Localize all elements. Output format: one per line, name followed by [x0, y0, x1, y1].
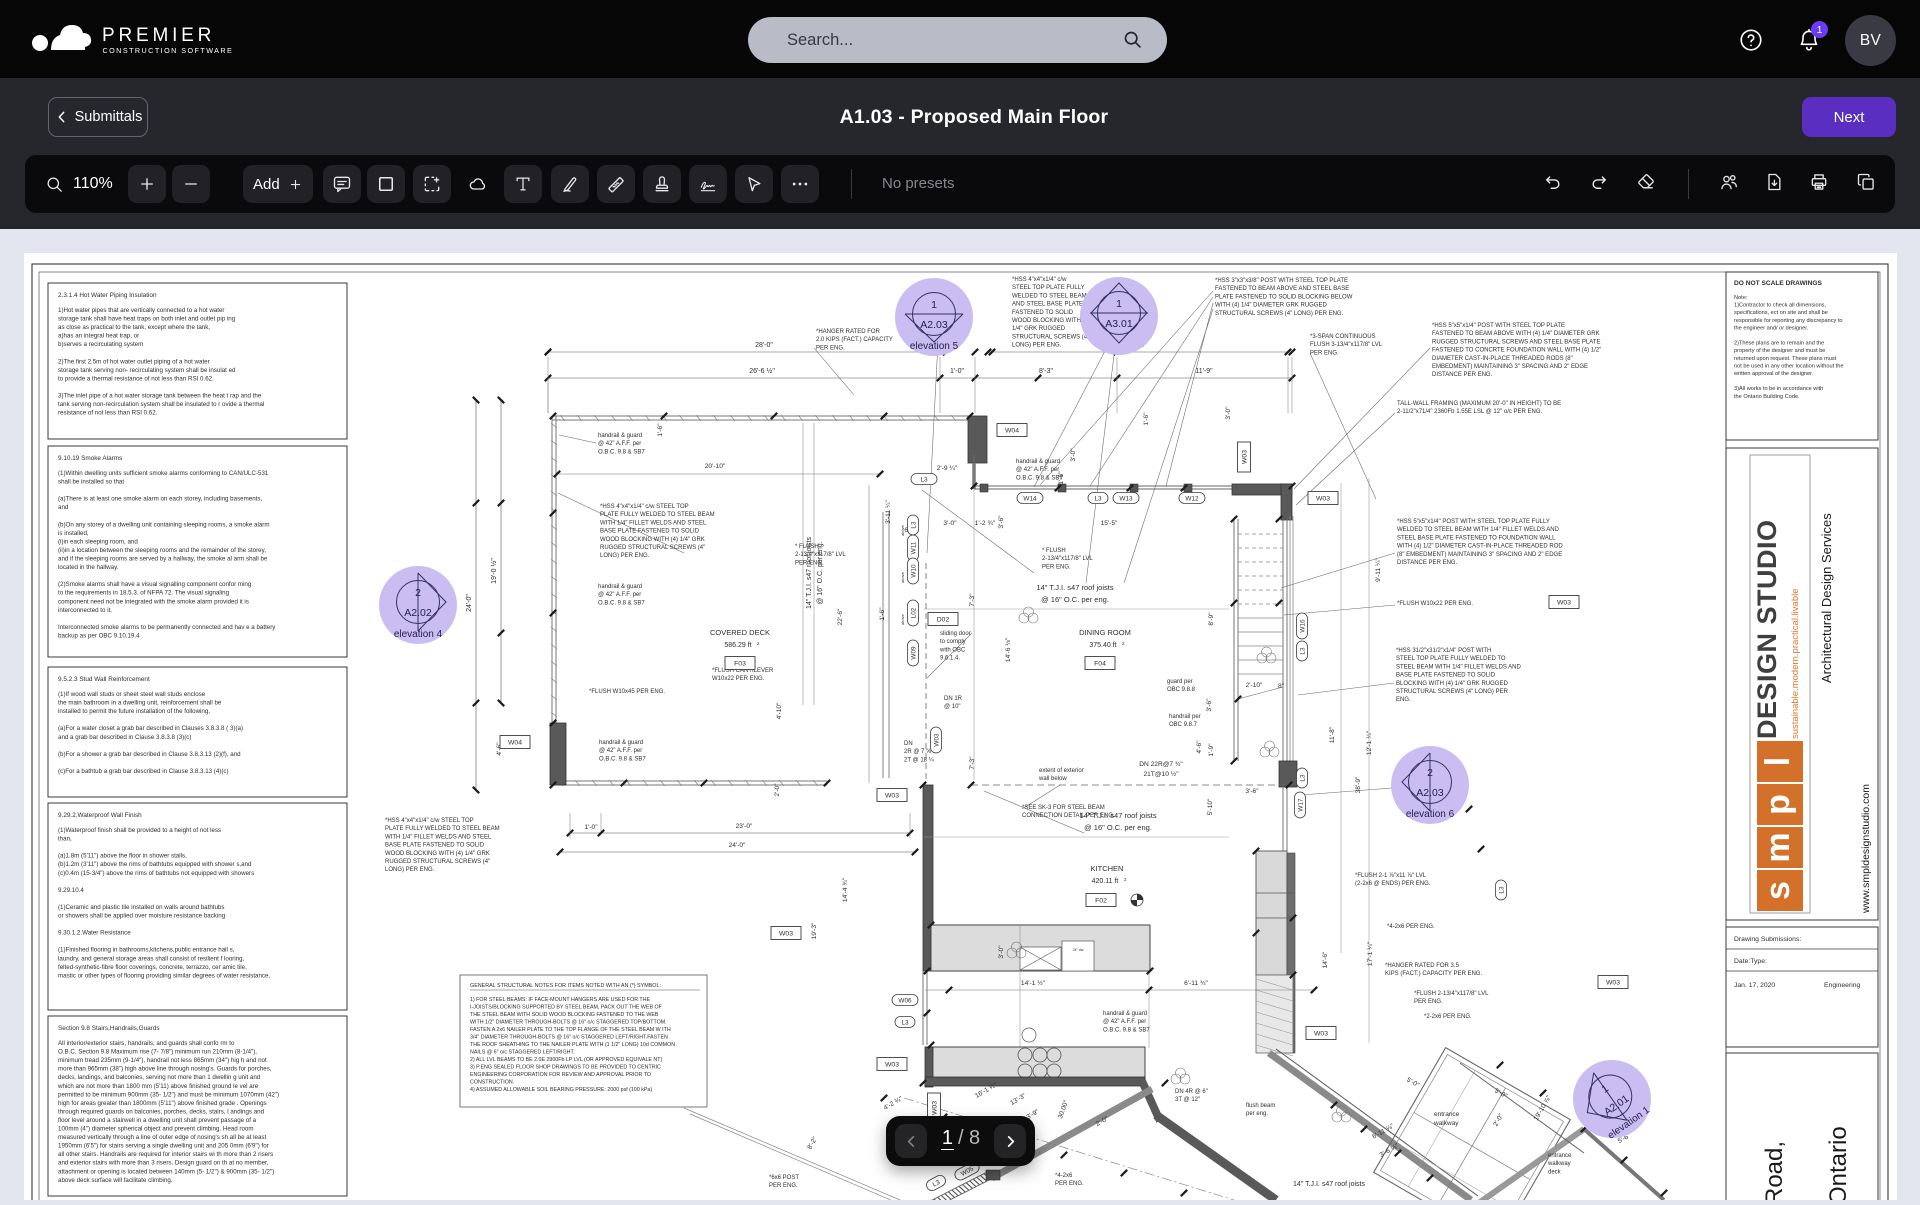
svg-text:1'-6": 1'-6" [1143, 412, 1150, 426]
svg-text:handrail & guard: handrail & guard [599, 740, 643, 746]
svg-text:375.40 ft: 375.40 ft [1089, 642, 1116, 649]
svg-text:COVERED DECK: COVERED DECK [710, 628, 770, 637]
svg-text:1)Contractor to check all dime: 1)Contractor to check all dimensions, [1734, 303, 1826, 309]
svg-text:elevation 4: elevation 4 [394, 629, 443, 640]
svg-text:3'-0": 3'-0" [998, 945, 1005, 959]
svg-text:than,: than, [58, 836, 72, 843]
svg-text:A2.02: A2.02 [404, 607, 432, 619]
svg-text:shall be installed so that: shall be installed so that [58, 479, 124, 486]
svg-text:b)serves a recirculating syste: b)serves a recirculating system [58, 341, 143, 348]
svg-text:all other stairs. Handrails ar: all other stairs. Handrails are required… [58, 1151, 273, 1158]
svg-text:handrail per: handrail per [1169, 714, 1201, 720]
svg-text:3/4" DIAMETER THROUGH-BOLTS @: 3/4" DIAMETER THROUGH-BOLTS @ 16" o/c ST… [470, 1035, 668, 1041]
svg-text:guard per: guard per [1167, 679, 1193, 685]
svg-text:3'-6": 3'-6" [1245, 788, 1259, 795]
svg-text:14" T.J.I. s47 roof joists: 14" T.J.I. s47 roof joists [806, 537, 813, 609]
svg-text:tank serving non-recirculation: tank serving non-recirculation system sh… [58, 401, 264, 408]
svg-text:STRUCTURAL SCREWS (4": STRUCTURAL SCREWS (4" [1012, 334, 1089, 340]
svg-text:storage tank shall have heat t: storage tank shall have heat traps on bo… [58, 316, 236, 323]
svg-text:21T@10 ½": 21T@10 ½" [1143, 770, 1179, 778]
svg-text:14'-4 ¾": 14'-4 ¾" [842, 877, 849, 902]
svg-text:RUGGED STRUCTURAL SCREWS (4": RUGGED STRUCTURAL SCREWS (4" [385, 859, 490, 865]
svg-text:3)The inlet pipe of a hot wate: 3)The inlet pipe of a hot water storage … [58, 393, 262, 400]
svg-text:DO NOT SCALE DRAWINGS: DO NOT SCALE DRAWINGS [1734, 280, 1823, 287]
svg-text:38'-9": 38'-9" [1355, 776, 1362, 793]
svg-text:CONSTRUCTION SOFTWARE: CONSTRUCTION SOFTWARE [103, 46, 234, 55]
svg-text:F02: F02 [1095, 897, 1107, 904]
svg-text:100mm (4") diameter spherical: 100mm (4") diameter spherical object and… [58, 1126, 253, 1133]
svg-text:586.29 ft: 586.29 ft [724, 642, 751, 649]
svg-text:sliding door: sliding door [940, 631, 971, 637]
svg-text:26'-6 ½": 26'-6 ½" [749, 367, 775, 375]
svg-text:9.29.2.Waterproof Wall Finish: 9.29.2.Waterproof Wall Finish [58, 812, 142, 819]
svg-text:W12: W12 [1185, 495, 1199, 502]
svg-text:@ 42" A.F.F. per: @ 42" A.F.F. per [599, 748, 642, 754]
svg-text:*HANGER RATED FOR 3.5: *HANGER RATED FOR 3.5 [1385, 963, 1460, 969]
svg-text:9.5.2.3 Stud Wall Reinforcemen: 9.5.2.3 Stud Wall Reinforcement [58, 676, 150, 683]
svg-text:BLOCKING WITH (4) 1/4" GRK RUG: BLOCKING WITH (4) 1/4" GRK RUGGED [1396, 681, 1508, 687]
svg-text:5'-0": 5'-0" [1493, 1087, 1508, 1100]
svg-text:19'-0 ½": 19'-0 ½" [490, 558, 498, 584]
svg-text:EMBEDMENT) MAINTAINING 3" SPAC: EMBEDMENT) MAINTAINING 3" SPACING AND 2"… [1432, 364, 1588, 370]
svg-text:elevation 5: elevation 5 [910, 341, 959, 352]
svg-text:(a)There is at least one smoke: (a)There is at least one smoke alarm on … [58, 496, 262, 503]
svg-text:property of the designer and m: property of the designer and must be [1734, 348, 1825, 354]
svg-text:8": 8" [1278, 683, 1285, 690]
svg-text:to provide a thermal resistanc: to provide a thermal resistance of not l… [58, 375, 214, 382]
svg-text:9'-11 ¼": 9'-11 ¼" [1375, 558, 1382, 582]
svg-text:WOOD BLOCKING WITH (4) 1/4" GR: WOOD BLOCKING WITH (4) 1/4" GRK [600, 537, 705, 543]
svg-text:@ 42" A.F.F. per: @ 42" A.F.F. per [1016, 467, 1059, 473]
svg-text:handrail & guard: handrail & guard [1103, 1011, 1147, 1017]
svg-text:O.B.C. 9.8 & SB7: O.B.C. 9.8 & SB7 [1016, 475, 1063, 481]
svg-text:12'-1 ¼": 12'-1 ¼" [1366, 730, 1373, 755]
svg-text:elevation 6: elevation 6 [1406, 809, 1455, 820]
svg-text:PLATE FULLY WELDED TO STEEL BE: PLATE FULLY WELDED TO STEEL BEAM [600, 512, 715, 518]
svg-text:Section 9.8 Stairs,Handrails,G: Section 9.8 Stairs,Handrails,Guards [58, 1025, 160, 1032]
svg-text:6'-11 ¾": 6'-11 ¾" [1184, 980, 1208, 987]
svg-text:backup as per OBC 9.10.19.4: backup as per OBC 9.10.19.4 [58, 632, 140, 639]
svg-text:as close as practical to the t: as close as practical to the tank, excep… [58, 324, 210, 331]
svg-text:FASTENED TO CONCRTE FOUNDATION: FASTENED TO CONCRTE FOUNDATION WALL WITH… [1432, 348, 1601, 354]
svg-text:F04: F04 [1094, 660, 1106, 667]
svg-text:*HANGER RATED FOR: *HANGER RATED FOR [816, 329, 881, 335]
svg-text:BASE PLATE FASTENED TO SOLID: BASE PLATE FASTENED TO SOLID [385, 843, 485, 849]
svg-text:2'-9 ¼": 2'-9 ¼" [937, 465, 958, 472]
svg-text:the engineer and/ or designer.: the engineer and/ or designer. [1734, 325, 1809, 331]
svg-text:to the requirements in 18.5.3.: to the requirements in 18.5.3. of NFPA 7… [58, 590, 230, 597]
svg-text:FASTENED TO BEAM ABOVE AND STE: FASTENED TO BEAM ABOVE AND STEEL BASE [1215, 286, 1349, 292]
svg-text:8'-9": 8'-9" [1208, 612, 1215, 626]
svg-text:laundry, and general storage a: laundry, and general storage areas shall… [58, 955, 245, 962]
svg-text:*FLUSH W10x22 PER ENG.: *FLUSH W10x22 PER ENG. [1397, 601, 1473, 607]
svg-text:W04: W04 [508, 739, 522, 746]
svg-text:WELDED TO STEEL BEAM: WELDED TO STEEL BEAM [1012, 293, 1087, 299]
svg-text:STEEL TOP PLATE FULLY WELDED T: STEEL TOP PLATE FULLY WELDED TO [1396, 656, 1506, 662]
svg-text:W11: W11 [910, 541, 917, 554]
svg-text:(c)For a bathtub a grab bar de: (c)For a bathtub a grab bar described in… [58, 768, 229, 775]
svg-text:per eng.: per eng. [1246, 1111, 1268, 1117]
svg-text:WITH 1/4" FILLET WELDS AND STE: WITH 1/4" FILLET WELDS AND STEEL [600, 520, 707, 526]
svg-text:1'-9": 1'-9" [1208, 743, 1215, 757]
svg-text:p: p [1759, 794, 1797, 815]
svg-text:ENGINEERING CORPORATION FOR RE: ENGINEERING CORPORATION FOR REVIEW AND A… [470, 1072, 651, 1078]
svg-text:DN 22R@7 ¾": DN 22R@7 ¾" [1139, 761, 1183, 768]
svg-text:3'-11 ¼": 3'-11 ¼" [885, 500, 892, 524]
svg-text:handrail & guard: handrail & guard [598, 584, 642, 590]
svg-text:L3: L3 [910, 521, 917, 529]
svg-text:I-JOISTS/BLOCKING SUPPORTED BY: I-JOISTS/BLOCKING SUPPORTED BY STEEL BEA… [470, 1005, 663, 1011]
svg-text:2: 2 [1122, 641, 1125, 646]
svg-text:9.30.1.2.Water Resistance: 9.30.1.2.Water Resistance [58, 930, 131, 937]
svg-text:9.29.10.4: 9.29.10.4 [58, 887, 84, 894]
svg-text:1'-6": 1'-6" [879, 607, 886, 621]
svg-text:22'-6": 22'-6" [837, 608, 844, 625]
svg-text:WITH 1/2" DIAMETER THROUGH-BO: WITH 1/2" DIAMETER THROUGH-BOLTS @ 16" o… [470, 1020, 667, 1026]
svg-text:storage tank serving non- reci: storage tank serving non- recirculating … [58, 367, 236, 374]
svg-text:*HSS 4"x4"x1/4" c/w: *HSS 4"x4"x1/4" c/w [1012, 277, 1067, 283]
svg-text:W10x22 PER ENG.: W10x22 PER ENG. [712, 676, 765, 682]
svg-text:W14: W14 [1023, 495, 1037, 502]
svg-text:attachment or opening is locat: attachment or opening is located between… [58, 1168, 274, 1175]
svg-text:above: above [900, 524, 905, 536]
svg-text:WITH (4) 1/4" DIAMETER GRK RUG: WITH (4) 1/4" DIAMETER GRK RUGGED [1215, 303, 1327, 309]
svg-text:3'-6": 3'-6" [1206, 698, 1213, 712]
svg-text:24" dw: 24" dw [1073, 948, 1084, 952]
svg-text:* FLUSH: * FLUSH [1042, 548, 1066, 554]
svg-text:installed to permit the future: installed to permit the future installat… [58, 708, 210, 715]
svg-text:entrance: entrance [1548, 1153, 1572, 1159]
svg-text:Road,: Road, [1761, 1141, 1788, 1200]
svg-text:DISTANCE PER ENG.: DISTANCE PER ENG. [1397, 560, 1458, 566]
svg-text:W03: W03 [931, 1101, 938, 1115]
svg-text:A3.01: A3.01 [1105, 318, 1133, 330]
svg-text:2)The first 2.5m of hot water: 2)The first 2.5m of hot water outlet pip… [58, 358, 210, 365]
svg-text:component need not be integrat: component need not be integrated with th… [58, 598, 249, 605]
svg-text:is installed,: is installed, [58, 530, 89, 537]
svg-text:THE STEEL BEAM WITH SOLID WOOD: THE STEEL BEAM WITH SOLID WOOD BLOCKING … [470, 1012, 659, 1018]
svg-text:2-11/2"x71/4" 2360Fb 1.55E LSL: 2-11/2"x71/4" 2360Fb 1.55E LSL @ 12" o/c… [1397, 409, 1543, 415]
svg-text:returned upon request. These p: returned upon request. These plans must [1734, 356, 1837, 362]
svg-text:1: 1 [931, 299, 937, 311]
svg-text:TALL-WALL FRAMING (MAXIMUM 20': TALL-WALL FRAMING (MAXIMUM 20'-0" IN HEI… [1397, 401, 1561, 407]
svg-text:floor level around a stairwell: floor level around a stairwell in a dwel… [58, 1117, 257, 1124]
svg-text:mastic or other types of floor: mastic or other types of flooring provid… [58, 972, 270, 979]
svg-text:(i)in each sleeping room, and: (i)in each sleeping room, and [58, 538, 138, 545]
svg-text:and exterior stairs with more: and exterior stairs with more than 3 ris… [58, 1160, 269, 1167]
svg-text:FASTENED TO BEAM ABOVE WITH (4: FASTENED TO BEAM ABOVE WITH (4) 1/4" DIA… [1432, 331, 1600, 337]
svg-text:Engineering: Engineering [1824, 982, 1860, 989]
svg-text:@ 42" A.F.F. per: @ 42" A.F.F. per [598, 592, 641, 598]
svg-text:A2.03: A2.03 [1416, 787, 1444, 799]
svg-text:more than 965mm (38") high abo: more than 965mm (38") high above line th… [58, 1066, 272, 1073]
svg-text:14'-6": 14'-6" [1322, 951, 1329, 968]
svg-text:WOOD BLOCKING WITH (4): WOOD BLOCKING WITH (4) [1012, 318, 1090, 324]
svg-text:W03: W03 [1557, 599, 1571, 606]
svg-text:2: 2 [757, 641, 760, 646]
svg-text:resistance of not less than RS: resistance of not less than RSI 0.62. [58, 410, 158, 417]
svg-text:DIAMETER CAST-IN-PLACE THREADE: DIAMETER CAST-IN-PLACE THREADED RODS (8" [1432, 356, 1573, 362]
svg-text:WOOD BLOCKING WITH (4) 1/4" GR: WOOD BLOCKING WITH (4) 1/4" GRK [385, 851, 490, 857]
svg-text:(a)For a water closet a grab b: (a)For a water closet a grab bar describ… [58, 725, 243, 732]
svg-text:PLATE FULLY WELDED TO STEEL BE: PLATE FULLY WELDED TO STEEL BEAM [385, 826, 500, 832]
svg-text:W03: W03 [1241, 450, 1248, 464]
svg-text:*HSS 5"x5"x1/4" POST WITH STEE: *HSS 5"x5"x1/4" POST WITH STEEL TOP PLAT… [1432, 323, 1565, 329]
svg-text:Date:Type:: Date:Type: [1734, 958, 1767, 965]
svg-text:(a)1.8m (5'11") above the floo: (a)1.8m (5'11") above the floor in showe… [58, 853, 187, 860]
svg-text:O.B.C. 9.8 & SB7: O.B.C. 9.8 & SB7 [598, 600, 645, 606]
svg-text:flush beam: flush beam [1246, 1103, 1275, 1109]
svg-text:STEEL BEAM WITH 1/4" FILLET WE: STEEL BEAM WITH 1/4" FILLET WELDS AND [1396, 664, 1521, 670]
svg-text:5'-10": 5'-10" [1207, 798, 1214, 815]
svg-text:*3-SPAN CONTINUOUS: *3-SPAN CONTINUOUS [1310, 334, 1376, 340]
svg-text:DN: DN [904, 741, 913, 747]
svg-text:*HSS 5"x5"x1/4" POST WITH STEE: *HSS 5"x5"x1/4" POST WITH STEEL TOP PLAT… [1397, 519, 1550, 525]
svg-text:walkway: walkway [1547, 1161, 1571, 1167]
svg-text:(b)On any storey of a dwelling: (b)On any storey of a dwelling unit cont… [58, 521, 270, 528]
svg-text:9.6.1.4.: 9.6.1.4. [940, 656, 960, 662]
svg-text:W03: W03 [933, 733, 940, 747]
svg-text:2) ALL LVL BEAMS TO BE 2.0E 29: 2) ALL LVL BEAMS TO BE 2.0E 2900Fb LP LV… [470, 1057, 662, 1063]
svg-text:WELDED TO STEEL BEAM WITH 1/4": WELDED TO STEEL BEAM WITH 1/4" FILLET WE… [1397, 527, 1560, 533]
svg-text:BASE PLATE FASTENED TO SOLID: BASE PLATE FASTENED TO SOLID [1396, 673, 1496, 679]
svg-text:and a grab bar described in Cl: and a grab bar described in Clause 3.8.3… [58, 734, 191, 741]
svg-text:Drawing Submissions:: Drawing Submissions: [1734, 936, 1801, 943]
svg-text:3T @ 12": 3T @ 12" [1175, 1097, 1200, 1103]
svg-text:*4-2x6 PER ENG.: *4-2x6 PER ENG. [1387, 924, 1435, 930]
svg-text:PER ENG.: PER ENG. [1310, 350, 1339, 356]
svg-text:14" T.J.I. s47 roof joists: 14" T.J.I. s47 roof joists [1036, 583, 1113, 592]
svg-text:2T @ 18 ¼: 2T @ 18 ¼ [904, 757, 935, 763]
svg-text:W13: W13 [1119, 495, 1133, 502]
svg-text:FASTENED TO SOLID: FASTENED TO SOLID [1012, 310, 1074, 316]
svg-text:1'-2 ¾": 1'-2 ¾" [975, 520, 996, 527]
svg-text:specifications, ect on site an: specifications, ect on site and shall be [1734, 310, 1828, 316]
svg-text:2'-10": 2'-10" [1246, 682, 1263, 689]
svg-text:W09: W09 [910, 646, 917, 660]
svg-text:STEEL BASE PLATE FASTENED TO F: STEEL BASE PLATE FASTENED TO FOUNDATION … [1397, 535, 1556, 541]
svg-text:PER ENG.: PER ENG. [1055, 1181, 1084, 1187]
svg-text:and: and [58, 504, 69, 511]
svg-text:(1)Ceramic and plastic tile in: (1)Ceramic and plastic tile installed on… [58, 904, 224, 911]
svg-text:(ii)in a location between the: (ii)in a location between the sleeping r… [58, 547, 266, 554]
svg-text:W03: W03 [1316, 495, 1330, 502]
svg-text:@ 16" O.C. per eng.: @ 16" O.C. per eng. [817, 541, 824, 604]
svg-text:W06: W06 [898, 997, 912, 1004]
svg-text:4'-2 ¾": 4'-2 ¾" [883, 1095, 905, 1112]
svg-text:or showers shall be applied ov: or showers shall be applied over moistur… [58, 913, 226, 920]
svg-text:@ 10": @ 10" [944, 704, 961, 710]
svg-text:OBC 9.8.7: OBC 9.8.7 [1169, 722, 1198, 728]
svg-text:420.11 ft: 420.11 ft [1092, 878, 1119, 885]
svg-text:*FLUSH W10x45 PER ENG.: *FLUSH W10x45 PER ENG. [589, 689, 665, 695]
svg-text:2)These plans are to remain an: 2)These plans are to remain and the [1734, 341, 1824, 347]
svg-text:3'-0": 3'-0" [943, 520, 957, 527]
svg-text:*HSS 3"x3"x3/8" POST WITH STEE: *HSS 3"x3"x3/8" POST WITH STEEL TOP PLAT… [1215, 278, 1348, 284]
svg-text:(2-2x6 @ ENDS) PER ENG.: (2-2x6 @ ENDS) PER ENG. [1355, 881, 1431, 887]
svg-text:@ 42" A.F.F. per: @ 42" A.F.F. per [598, 441, 641, 447]
svg-text:W03: W03 [1314, 1030, 1328, 1037]
svg-text:*2-2x6 PER ENG.: *2-2x6 PER ENG. [1424, 1014, 1472, 1020]
svg-text:above: above [900, 613, 905, 625]
svg-text:high for areas greater than 18: high for areas greater than 1800mm (5'11… [58, 1100, 267, 1107]
svg-text:PER ENG.: PER ENG. [1414, 999, 1443, 1005]
svg-text:DN 4R @ 6": DN 4R @ 6" [1175, 1089, 1208, 1095]
svg-text:STRUCTURAL SCREWS (4" LONG) PE: STRUCTURAL SCREWS (4" LONG) PER [1396, 689, 1509, 695]
svg-text:W03: W03 [885, 1061, 899, 1068]
svg-text:8'-2": 8'-2" [806, 1135, 819, 1150]
svg-text:Note:: Note: [1734, 295, 1748, 301]
svg-text:deck: deck [1548, 1169, 1562, 1175]
svg-text:3) P.ENG SEALED FLOOR SHOP DRA: 3) P.ENG SEALED FLOOR SHOP DRAWINGS TO B… [470, 1065, 661, 1071]
svg-text:wall below: wall below [1038, 776, 1067, 782]
svg-text:responsible for reporting any: responsible for reporting any discrepanc… [1734, 318, 1843, 324]
svg-text:2.3.1.4 Hot Water Piping Insul: 2.3.1.4 Hot Water Piping Insulation [58, 292, 157, 299]
svg-text:1'-6": 1'-6" [657, 423, 664, 437]
svg-text:decks, landings, and balconies: decks, landings, and balconies, serving … [58, 1074, 261, 1081]
svg-text:23'-0": 23'-0" [736, 823, 753, 830]
svg-text:KIPS (FACT.) CAPACITY PER ENG.: KIPS (FACT.) CAPACITY PER ENG. [1385, 971, 1482, 977]
svg-text:s: s [1759, 881, 1797, 900]
svg-text:*FLUSH 2-1 ⅞"x11 ⅞" LVL: *FLUSH 2-1 ⅞"x11 ⅞" LVL [1355, 873, 1427, 879]
svg-text:O.B.C. Section 9.8 Maximum ris: O.B.C. Section 9.8 Maximum rise (7- 7/8"… [58, 1049, 257, 1056]
svg-text:(1)Finished flooring in bathro: (1)Finished flooring in bathrooms,kitche… [58, 947, 235, 954]
svg-text:L3: L3 [920, 476, 928, 483]
svg-text:PLATE FASTENED TO SOLID BLOCKI: PLATE FASTENED TO SOLID BLOCKING BELOW [1215, 294, 1353, 300]
svg-text:(2)Smoke alarms shall have a v: (2)Smoke alarms shall have a visual sign… [58, 581, 252, 588]
svg-text:1/4" GRK RUGGED: 1/4" GRK RUGGED [1012, 326, 1066, 332]
svg-text:8'-3": 8'-3" [1039, 368, 1053, 375]
svg-text:and if the sleeping rooms are: and if the sleeping rooms are served by … [58, 556, 268, 563]
svg-text:FLUSH 3-13/4"x117/8" LVL: FLUSH 3-13/4"x117/8" LVL [1310, 342, 1383, 348]
svg-text:11'-8": 11'-8" [1329, 726, 1336, 743]
svg-text:L3: L3 [1498, 886, 1505, 894]
svg-text:BASE PLATE FASTENED TO SOLID: BASE PLATE FASTENED TO SOLID [600, 529, 700, 535]
svg-text:W03: W03 [779, 930, 793, 937]
svg-text:located in the hallway.: located in the hallway. [58, 564, 119, 571]
svg-text:@ 16" O.C. per eng.: @ 16" O.C. per eng. [1084, 823, 1152, 832]
svg-text:NAILS @ 6" o/c STAGGERED LEFT/: NAILS @ 6" o/c STAGGERED LEFT/RIGHT. [470, 1050, 575, 1056]
svg-text:WITH (4) 1/2" DIAMETER CAST-IN: WITH (4) 1/2" DIAMETER CAST-IN-PLACE THR… [1397, 544, 1563, 550]
svg-text:O.B.C. 9.8 & SB7: O.B.C. 9.8 & SB7 [599, 756, 646, 762]
svg-text:which are not more than 1800 m: which are not more than 1800 mm (5'11) a… [57, 1083, 259, 1090]
svg-text:W10: W10 [910, 564, 917, 578]
svg-text:THE ROOF SHEATHING TO THE NAIL: THE ROOF SHEATHING TO THE NAILER PLATE W… [470, 1042, 675, 1048]
svg-text:*HSS 31/2"x31/2"x1/4" POST WIT: *HSS 31/2"x31/2"x1/4" POST WITH [1396, 648, 1491, 654]
svg-text:interconnected to it.: interconnected to it. [58, 607, 112, 614]
svg-text:KITCHEN: KITCHEN [1091, 864, 1124, 873]
svg-text:handrail & guard: handrail & guard [598, 433, 642, 439]
svg-text:1'-0": 1'-0" [584, 824, 598, 831]
svg-text:17'-1 ¼": 17'-1 ¼" [1367, 941, 1374, 966]
svg-text:2-13/4"x117/8" LVL: 2-13/4"x117/8" LVL [1042, 556, 1093, 562]
svg-text:11'-9": 11'-9" [1195, 368, 1213, 375]
svg-text:3'-0": 3'-0" [1225, 406, 1232, 420]
svg-text:9.10.19 Smoke Alarms: 9.10.19 Smoke Alarms [58, 455, 122, 462]
svg-text:extent of exterior: extent of exterior [1039, 768, 1084, 774]
svg-text:W03: W03 [1606, 979, 1620, 986]
svg-text:RUGGED STRUCTURAL SCREWS (4": RUGGED STRUCTURAL SCREWS (4" [600, 545, 705, 551]
svg-text:2: 2 [1427, 767, 1433, 779]
svg-text:@ 16" O.C. per eng.: @ 16" O.C. per eng. [1041, 595, 1109, 604]
svg-text:handrail & guard: handrail & guard [1016, 459, 1060, 465]
svg-text:L02: L02 [910, 607, 917, 618]
svg-text:*HSS 4"x4"x1/4" c/w STEEL TOP: *HSS 4"x4"x1/4" c/w STEEL TOP [385, 818, 474, 824]
svg-text:Interconnected smoke alarms to: Interconnected smoke alarms to be perman… [58, 624, 276, 631]
svg-text:1'-0": 1'-0" [950, 368, 964, 375]
svg-text:4'-10": 4'-10" [776, 702, 783, 719]
svg-text:permitted to be minimum 900mm: permitted to be minimum 900mm (35- 1/2")… [58, 1091, 279, 1098]
svg-text:a)has an integral heat trap, o: a)has an integral heat trap, or [58, 333, 139, 340]
svg-text:A2.03: A2.03 [920, 319, 948, 331]
svg-text:15'-5": 15'-5" [1101, 520, 1118, 527]
svg-text:O.B.C. 9.8 & SB7: O.B.C. 9.8 & SB7 [598, 449, 645, 455]
svg-text:19'-3": 19'-3" [811, 922, 818, 939]
svg-text:*4-2x6: *4-2x6 [1055, 1173, 1073, 1179]
svg-text:STEEL TOP PLATE FULLY: STEEL TOP PLATE FULLY [1012, 285, 1085, 291]
svg-text:www.smpldesignstudio.com: www.smpldesignstudio.com [1860, 784, 1872, 914]
svg-text:7'-3": 7'-3" [969, 593, 976, 607]
svg-text:*HSS 4"x4"x1/4" c/w STEEL TOP: *HSS 4"x4"x1/4" c/w STEEL TOP [600, 504, 689, 510]
svg-text:24'-0": 24'-0" [729, 842, 746, 849]
svg-text:4) ASSUMED ALLOWABLE SOIL BEAR: 4) ASSUMED ALLOWABLE SOIL BEARING PRESSU… [470, 1087, 652, 1093]
svg-text:(b)For a shower a grab bar des: (b)For a shower a grab bar described in … [58, 751, 241, 758]
svg-text:*6x6 POST: *6x6 POST [769, 1175, 799, 1181]
svg-text:l: l [1759, 757, 1797, 766]
svg-text:L3: L3 [1299, 774, 1306, 782]
svg-text:2: 2 [415, 587, 421, 599]
svg-text:Ontario: Ontario [1825, 1126, 1852, 1200]
svg-text:(1)If wood wall studs or sheet: (1)If wood wall studs or sheet steel wal… [58, 691, 206, 698]
svg-text:PREMIER: PREMIER [102, 25, 215, 46]
svg-text:DINING ROOM: DINING ROOM [1079, 628, 1131, 637]
svg-text:14'-1 ½": 14'-1 ½" [1021, 979, 1046, 987]
svg-text:above: above [900, 571, 905, 583]
svg-text:with OBC: with OBC [939, 647, 966, 653]
svg-text:F03: F03 [734, 660, 746, 667]
svg-text:ENG.: ENG. [1396, 697, 1411, 703]
svg-text:the Ontario Building Code.: the Ontario Building Code. [1734, 394, 1800, 400]
svg-text:2.0 KIPS (FACT.) CAPACITY: 2.0 KIPS (FACT.) CAPACITY [816, 337, 893, 343]
svg-text:2R @ 7 ⅝: 2R @ 7 ⅝ [904, 749, 932, 755]
svg-text:2: 2 [1124, 877, 1127, 882]
svg-text:Architectural Design Services: Architectural Design Services [1819, 513, 1834, 683]
svg-text:(1)Waterproof finish shall be: (1)Waterproof finish shall be provided t… [58, 827, 221, 834]
svg-text:m: m [1759, 832, 1797, 862]
svg-text:not be used in any other locat: not be used in any other location withou… [1734, 363, 1843, 369]
svg-text:AND STEEL BASE PLATE: AND STEEL BASE PLATE [1012, 302, 1083, 308]
svg-text:L3: L3 [1299, 647, 1306, 655]
svg-text:30.00°: 30.00° [1056, 1099, 1070, 1120]
svg-text:7'-3": 7'-3" [969, 756, 976, 770]
svg-text:FASTEN A 2x6 NAILER PLATE TO T: FASTEN A 2x6 NAILER PLATE TO THE TOP FLA… [470, 1027, 671, 1033]
svg-text:13'-3": 13'-3" [1009, 1092, 1028, 1107]
svg-text:(8" EMBEDMENT) MAINTAINING 3": (8" EMBEDMENT) MAINTAINING 3" SPACING AN… [1397, 552, 1562, 558]
svg-text:written approval of the design: written approval of the designer. [1733, 371, 1814, 377]
svg-text:PER ENG.: PER ENG. [1042, 564, 1071, 570]
svg-text:GENERAL STRUCTURAL NOTES FOR I: GENERAL STRUCTURAL NOTES FOR ITEMS NOTED… [470, 983, 661, 989]
svg-text:@ 42" A.F.F. per: @ 42" A.F.F. per [1103, 1019, 1146, 1025]
svg-text:1950mm (6'5") for stairs servi: 1950mm (6'5") for stairs serving a singl… [58, 1143, 269, 1150]
svg-text:to comply: to comply [940, 639, 966, 645]
svg-text:CONSTRUCTION.: CONSTRUCTION. [470, 1080, 514, 1086]
svg-text:3'-0": 3'-0" [1070, 448, 1077, 462]
svg-text:O.B.C. 9.8 & SB7: O.B.C. 9.8 & SB7 [1103, 1027, 1150, 1033]
svg-text:above deck surface will facili: above deck surface will facilitate climb… [58, 1177, 173, 1184]
svg-text:DN 1R: DN 1R [944, 696, 963, 702]
svg-text:(1)Within dwelling units suffi: (1)Within dwelling units sufficient smok… [58, 470, 269, 477]
svg-text:minimum tread 235mm (9-1/4"),: minimum tread 235mm (9-1/4"), handrail n… [58, 1057, 267, 1064]
